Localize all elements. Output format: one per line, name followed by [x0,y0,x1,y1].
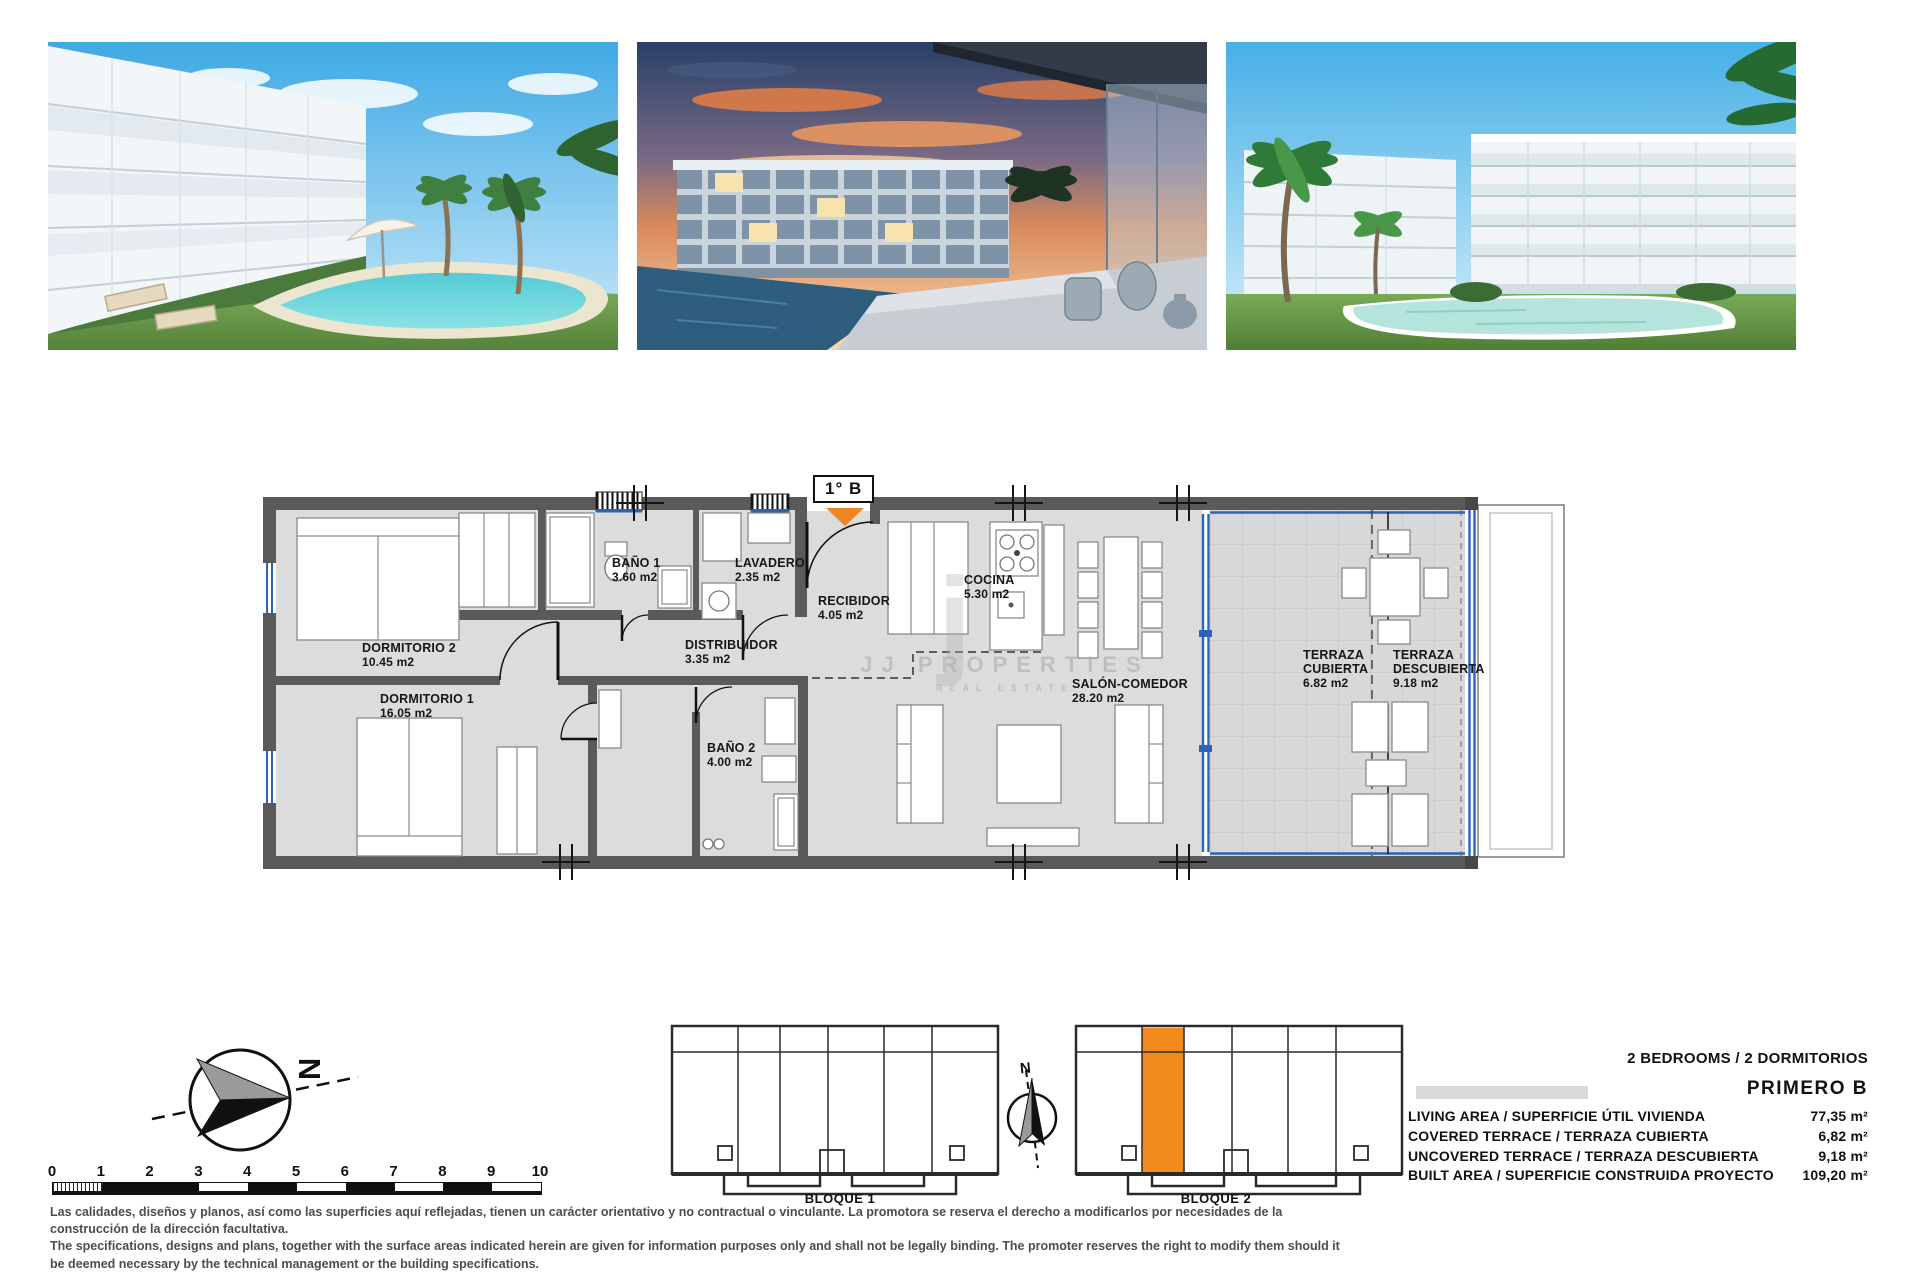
entry-arrow-icon [826,508,864,526]
room-label-bano2: BAÑO 24.00 m2 [707,741,755,769]
disclaimer-en: The specifications, designs and plans, t… [50,1238,1345,1272]
scale-tick: 3 [194,1163,202,1180]
summary-row: COVERED TERRACE / TERRAZA CUBIERTA 6,82 … [1408,1127,1868,1147]
render-photo-buildings-day [1226,42,1796,350]
floorplan-sheet: j JJ PROPERTIES REAL ESTATE 1° B DORMITO… [0,0,1920,1280]
render-photo-terrace-dusk [637,42,1207,350]
unit-label-badge: 1° B [813,475,874,503]
scale-tick: 6 [341,1163,349,1180]
summary-row-label: LIVING AREA / SUPERFICIE ÚTIL VIVIENDA [1408,1107,1705,1127]
scale-bar-strip [52,1182,542,1195]
room-label-terraza-descubierta: TERRAZA DESCUBIERTA9.18 m2 [1393,648,1489,690]
scale-tick: 0 [48,1163,56,1180]
room-label-bano1: BAÑO 13.60 m2 [612,556,660,584]
scale-tick: 1 [97,1163,105,1180]
scale-tick: 8 [438,1163,446,1180]
compass-rose [140,1025,370,1175]
summary-row: LIVING AREA / SUPERFICIE ÚTIL VIVIENDA 7… [1408,1107,1868,1127]
room-label-lavadero: LAVADERO2.35 m2 [735,556,805,584]
summary-strip [1416,1086,1588,1099]
photo-2-illustration [637,42,1207,350]
north-label: N [291,1058,327,1080]
room-label-recibidor: RECIBIDOR4.05 m2 [818,594,890,622]
photo-3-illustration [1226,42,1796,350]
site-blocks-diagram [655,1018,1425,1208]
room-label-cocina: COCINA5.30 m2 [964,573,1015,601]
summary-row-value: 109,20 m² [1802,1166,1868,1186]
summary-row-label: COVERED TERRACE / TERRAZA CUBIERTA [1408,1127,1709,1147]
room-label-salon-comedor: SALÓN-COMEDOR28.20 m2 [1072,677,1188,705]
scale-tick: 9 [487,1163,495,1180]
summary-row-label: BUILT AREA / SUPERFICIE CONSTRUIDA PROYE… [1408,1166,1774,1186]
room-label-dormitorio2: DORMITORIO 210.45 m2 [362,641,456,669]
scale-tick: 7 [389,1163,397,1180]
legal-disclaimer: Las calidades, diseños y planos, así com… [50,1204,1345,1273]
render-photo-pool-day [48,42,618,350]
surface-summary: 2 BEDROOMS / 2 DORMITORIOS PRIMERO B LIV… [1408,1050,1868,1186]
summary-row-label: UNCOVERED TERRACE / TERRAZA DESCUBIERTA [1408,1147,1759,1167]
site-north-label: N [1019,1059,1032,1077]
summary-row-value: 77,35 m² [1810,1107,1868,1127]
scale-tick: 10 [532,1163,549,1180]
room-label-terraza-cubierta: TERRAZA CUBIERTA6.82 m2 [1303,648,1377,690]
summary-row-value: 9,18 m² [1818,1147,1868,1167]
scale-tick: 5 [292,1163,300,1180]
highlighted-unit [1142,1028,1184,1172]
summary-row: BUILT AREA / SUPERFICIE CONSTRUIDA PROYE… [1408,1166,1868,1186]
room-label-distribuidor: DISTRIBUIDOR3.35 m2 [685,638,778,666]
bedrooms-heading: 2 BEDROOMS / 2 DORMITORIOS [1408,1050,1868,1067]
summary-row: UNCOVERED TERRACE / TERRAZA DESCUBIERTA … [1408,1147,1868,1167]
floor-plan-drawing [250,480,1580,880]
scale-tick: 2 [145,1163,153,1180]
disclaimer-es: Las calidades, diseños y planos, así com… [50,1204,1345,1238]
summary-row-value: 6,82 m² [1818,1127,1868,1147]
room-label-dormitorio1: DORMITORIO 116.05 m2 [380,692,474,720]
scale-bar: 0 1 2 3 4 5 6 7 8 9 10 [48,1163,540,1197]
scale-tick: 4 [243,1163,251,1180]
watermark-brand: JJ PROPERTIES [855,652,1155,678]
photo-1-illustration [48,42,618,350]
